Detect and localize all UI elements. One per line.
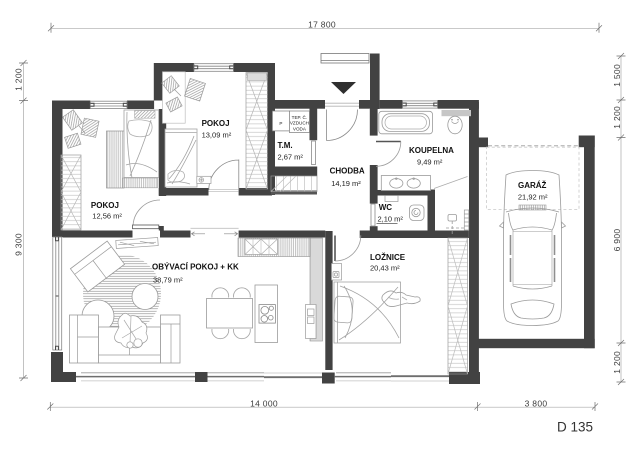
svg-text:13,09 m²: 13,09 m² <box>202 131 232 140</box>
svg-text:POKOJ: POKOJ <box>91 201 119 210</box>
svg-text:VODA: VODA <box>293 126 307 131</box>
svg-text:14,19 m²: 14,19 m² <box>331 179 361 188</box>
svg-text:20,43 m²: 20,43 m² <box>370 264 400 273</box>
svg-text:14 000: 14 000 <box>250 398 278 408</box>
svg-text:2,67 m²: 2,67 m² <box>278 153 304 162</box>
svg-text:1 200: 1 200 <box>14 68 24 91</box>
svg-text:9 300: 9 300 <box>14 233 24 256</box>
svg-text:T.M.: T.M. <box>278 141 293 150</box>
svg-text:17 800: 17 800 <box>308 20 336 30</box>
svg-text:21,92 m²: 21,92 m² <box>518 192 548 201</box>
svg-text:9,49 m²: 9,49 m² <box>417 158 443 167</box>
svg-text:1 200: 1 200 <box>612 106 622 129</box>
svg-text:12,56 m²: 12,56 m² <box>92 211 122 220</box>
svg-text:OBÝVACÍ POKOJ + KK: OBÝVACÍ POKOJ + KK <box>152 263 239 272</box>
svg-text:38,79 m²: 38,79 m² <box>153 276 183 285</box>
svg-text:TEP. Č.: TEP. Č. <box>292 114 308 120</box>
svg-text:1 500: 1 500 <box>612 64 622 87</box>
svg-text:POKOJ: POKOJ <box>202 119 230 128</box>
svg-text:P: P <box>279 121 282 126</box>
svg-text:CHODBA: CHODBA <box>330 167 365 176</box>
svg-text:1 200: 1 200 <box>612 351 622 374</box>
svg-text:D 135: D 135 <box>557 420 593 435</box>
svg-text:VZDUCH: VZDUCH <box>290 121 309 126</box>
svg-text:2,10 m²: 2,10 m² <box>378 215 404 224</box>
svg-text:GARÁŽ: GARÁŽ <box>518 181 547 190</box>
svg-text:KOUPELNA: KOUPELNA <box>409 146 454 155</box>
svg-text:LOŽNICE: LOŽNICE <box>370 253 406 262</box>
svg-text:3 800: 3 800 <box>525 398 548 408</box>
svg-text:WC: WC <box>379 203 393 212</box>
svg-text:6 900: 6 900 <box>612 229 622 252</box>
